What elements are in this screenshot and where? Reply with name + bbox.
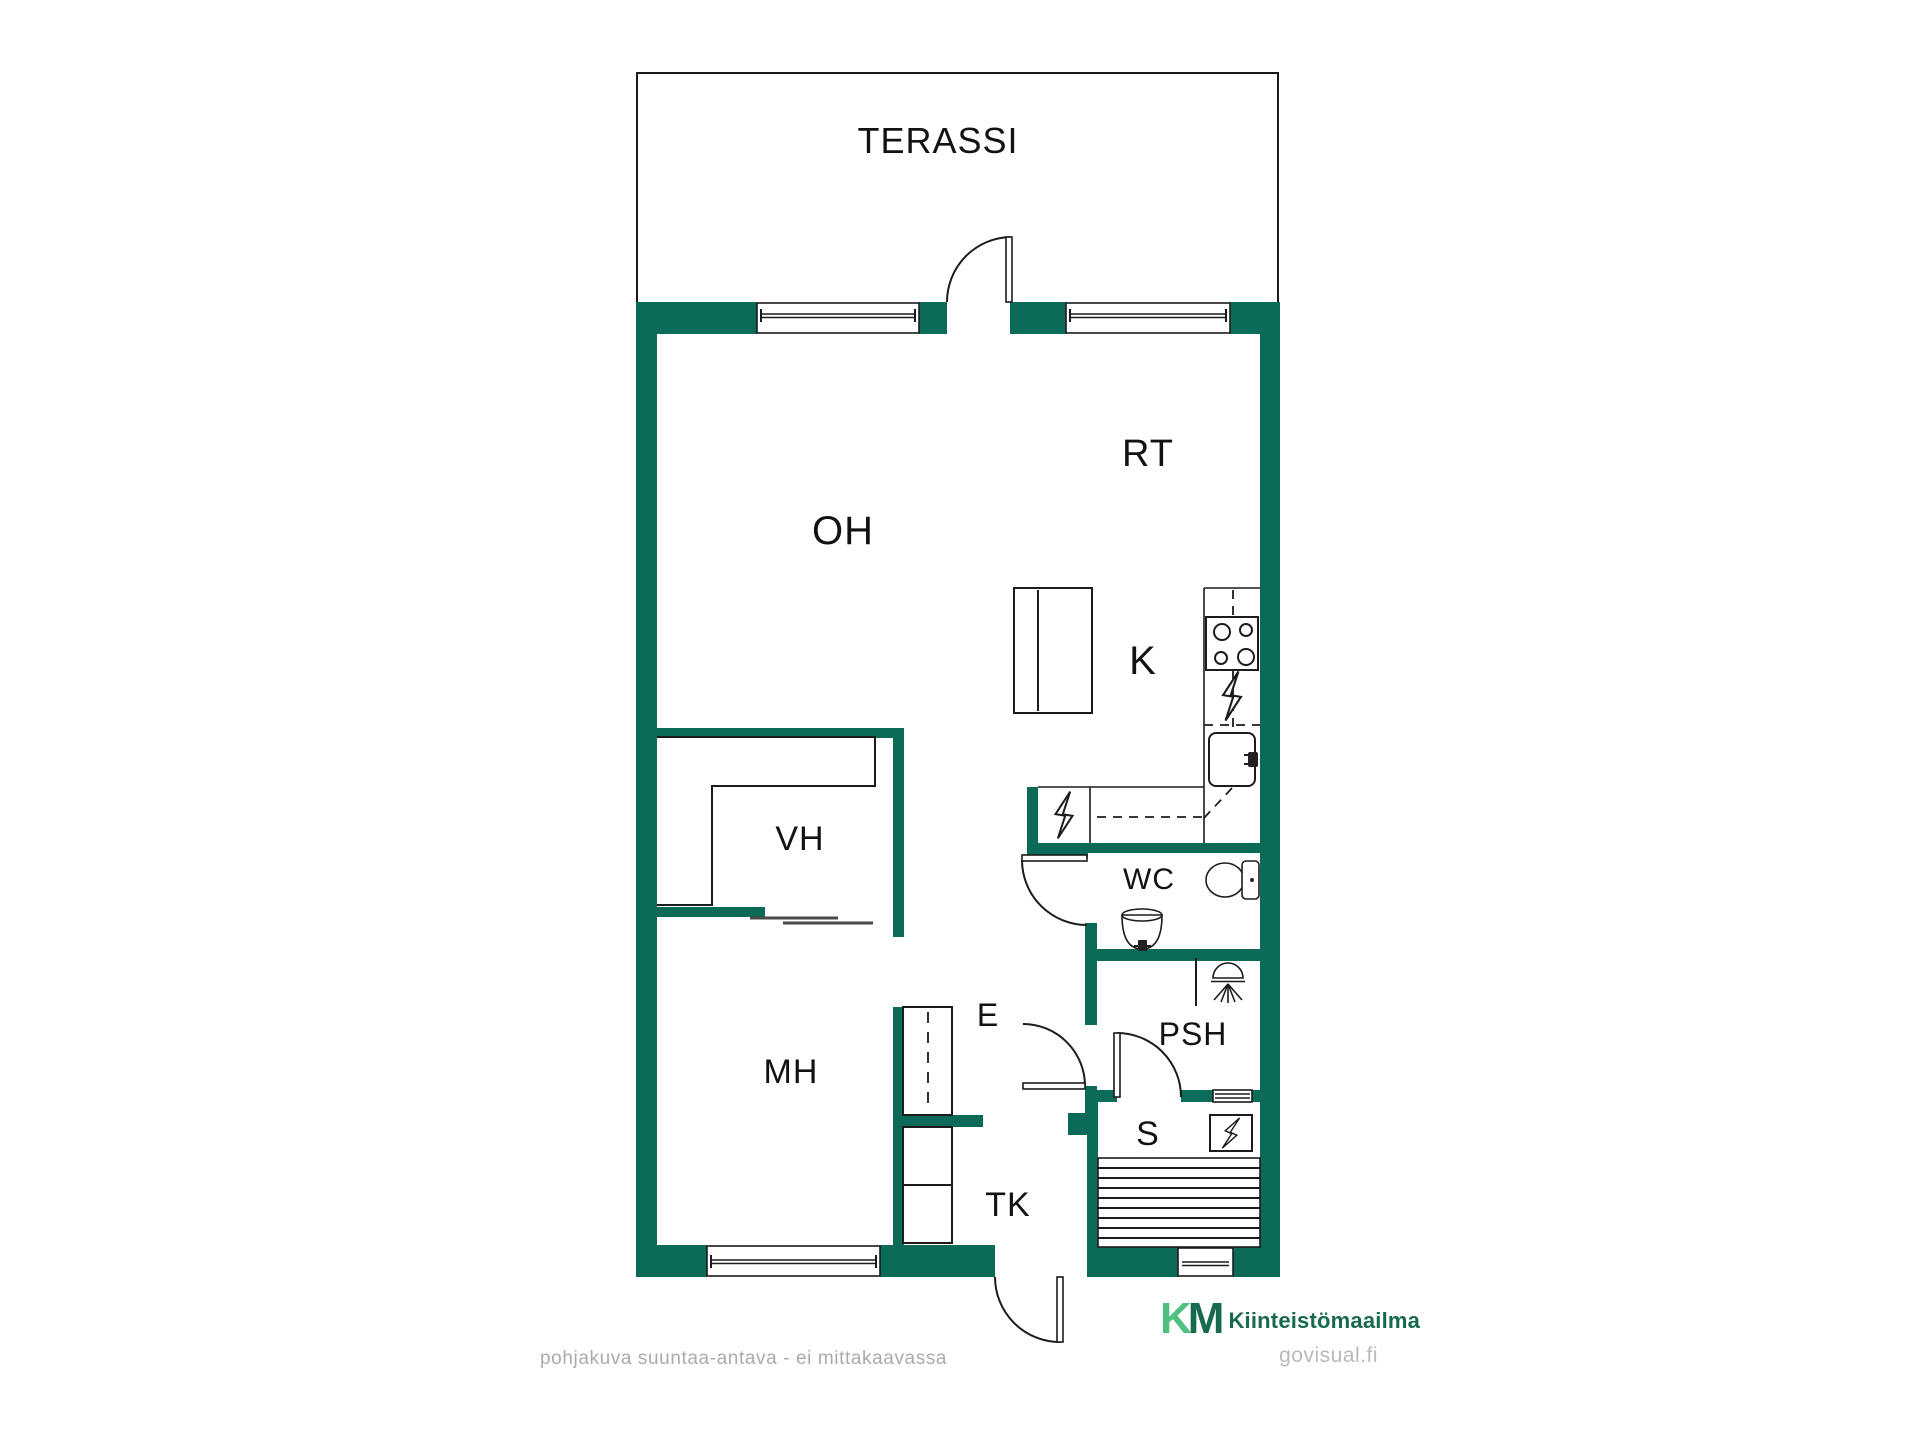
hall-wardrobe-icon [903,1007,952,1115]
washbasin-icon [1122,909,1162,951]
logo-k-icon: K [1160,1300,1188,1337]
stove-icon [1206,617,1258,670]
wall-kitchen-counter-cap [1027,787,1038,843]
floor-plan-page: TERASSI OH RT K VH WC MH E PSH S TK pohj… [0,0,1920,1440]
kiinteistomaailma-logo: KM Kiinteistömaailma [1160,1300,1380,1337]
kitchen-island [1014,588,1092,713]
disclaimer-text: pohjakuva suuntaa-antava - ei mittakaava… [540,1348,947,1370]
psh-door [1023,1024,1085,1089]
wall-wc-psh [1097,949,1260,961]
room-label-oh: OH [812,509,874,553]
opening-terrace-door [947,302,1010,334]
wall-tk-east-stub [1068,1113,1085,1135]
bathroom-fixtures [1098,861,1260,1247]
room-label-s: S [1136,1115,1160,1153]
room-label-e: E [977,997,999,1033]
opening-front-door [995,1245,1087,1277]
room-label-mh: MH [764,1053,819,1091]
govisual-watermark: govisual.fi [1160,1344,1378,1368]
sliding-door-icon [750,918,873,923]
vh-wardrobe-icon [657,737,875,905]
room-label-rt: RT [1122,433,1174,475]
room-label-psh: PSH [1159,1016,1228,1052]
room-label-tk: TK [985,1186,1030,1224]
room-labels: TERASSI OH RT K VH WC MH E PSH S TK [764,120,1228,1224]
toilet-icon [1206,861,1259,899]
wc-door [1022,855,1087,925]
wall-s-west [1087,1102,1098,1245]
walls [636,302,1280,1277]
room-label-wc: WC [1123,863,1175,896]
opening-window-mh [707,1245,880,1277]
wall-left [636,302,657,1277]
window-icon-psh-s [1213,1090,1252,1102]
logo-m-icon: M [1188,1300,1225,1337]
sink-icon [1209,733,1258,786]
wall-psh-s-right [1252,1090,1260,1102]
floor-plan-drawing: TERASSI OH RT K VH WC MH E PSH S TK [0,0,1920,1440]
sauna-bench-icon [1098,1158,1260,1247]
room-label-k: K [1129,639,1157,683]
dishwasher-bolt-icon [1214,671,1250,720]
room-label-terassi: TERASSI [857,120,1018,161]
wall-right [1260,302,1280,1277]
terrace-door [947,237,1012,302]
terrace [637,72,1279,302]
wall-wc-west [1085,923,1097,1025]
entry-cabinet-icon [903,1127,952,1243]
logo-company-name: Kiinteistömaailma [1228,1308,1420,1337]
sauna-heater-icon [1210,1115,1252,1151]
wall-vh-right [893,728,904,937]
shower-icon [1211,963,1245,1003]
wall-e-tk [904,1115,983,1127]
front-door [995,1277,1063,1342]
wall-vh-bottom [657,907,765,917]
wall-psh-s-mid [1181,1090,1213,1102]
fridge-bolt-icon [1047,792,1081,839]
room-label-vh: VH [775,820,824,858]
